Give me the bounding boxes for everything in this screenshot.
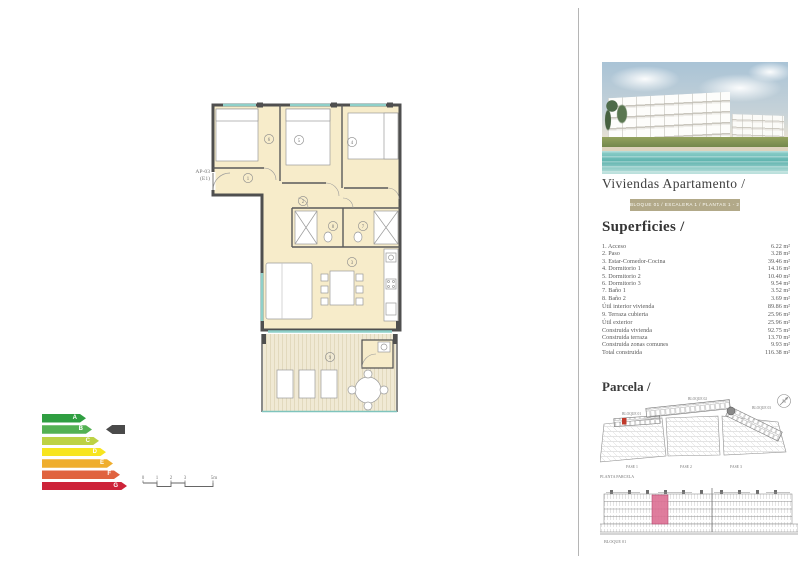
roof-elements [606, 490, 790, 494]
svg-text:5m: 5m [211, 476, 218, 481]
svg-text:0: 0 [142, 476, 145, 481]
panel-divider [578, 8, 579, 556]
row-label: 4. Dormitorio 1 [602, 267, 641, 272]
table-row-total: Total construida116.38 m² [602, 351, 790, 356]
fase1-label: FASE 1 [626, 465, 638, 469]
row-value: 89.86 m² [768, 305, 790, 310]
table-row-subtotal: Útil exterior25.96 m² [602, 321, 790, 326]
energy-bar-a: A [42, 414, 86, 423]
row-value: 13.70 m² [768, 336, 790, 341]
energy-bar-g: G [42, 482, 127, 491]
table-row-subtotal: Construida vivienda92.75 m² [602, 329, 790, 334]
table-row: 6. Dormitorio 39.54 m² [602, 282, 790, 287]
fase2-label: FASE 2 [680, 465, 692, 469]
row-value: 116.38 m² [765, 351, 790, 356]
terrace-storage [362, 340, 393, 368]
row-label: 3. Estar-Comedor-Cocina [602, 260, 665, 265]
cloud [748, 62, 788, 82]
building-elevation: BLOQUE 01 [600, 486, 798, 548]
row-label: Total construida [602, 351, 642, 356]
row-label: 5. Dormitorio 2 [602, 275, 641, 280]
row-label: Útil exterior [602, 321, 632, 326]
row-value: 3.69 m² [771, 297, 790, 302]
svg-text:N: N [782, 400, 786, 405]
row-label: 2. Paso [602, 252, 620, 257]
energy-bar-e: E [42, 459, 113, 468]
scale-tick-labels: 0 1 2 3 5m [142, 476, 217, 481]
row-value: 14.16 m² [768, 267, 790, 272]
energy-letter: B [79, 426, 83, 432]
table-row: 8. Baño 23.69 m² [602, 297, 790, 302]
table-row: Construida zonas comunes9.93 m² [602, 343, 790, 348]
bloque1-label: BLOQUE 01 [622, 412, 641, 416]
row-value: 92.75 m² [768, 329, 790, 334]
plan-sheet-page: AP-03 (E1) 1 2 3 4 5 6 7 8 9 A B C D E F… [0, 0, 799, 565]
row-label: Construida zonas comunes [602, 343, 668, 348]
location-badge: BLOQUE 01 / ESCALERA 1 / PLANTAS 1 - 2 -… [630, 199, 740, 211]
svg-text:3: 3 [184, 476, 187, 481]
row-label: 8. Baño 2 [602, 297, 626, 302]
palm-tree [602, 96, 632, 140]
row-label: 1. Acceso [602, 245, 626, 250]
energy-letter: F [107, 471, 111, 477]
north-arrow-icon: N [778, 395, 791, 408]
superficies-title: Superficies / [602, 219, 685, 236]
energy-letter: C [86, 438, 90, 444]
table-row: 9. Terraza cubierta25.96 m² [602, 313, 790, 318]
site-plan-caption: PLANTA PARCELA [600, 474, 634, 479]
scale-bar: 0 1 2 3 5m [142, 474, 224, 492]
energy-letter: G [113, 483, 118, 489]
unit-label: AP-03 [195, 169, 210, 175]
facade [600, 488, 798, 534]
row-value: 6.22 m² [771, 245, 790, 250]
superficies-table: 1. Acceso6.22 m² 2. Paso3.28 m² 3. Estar… [602, 245, 790, 359]
row-label: 7. Baño 1 [602, 289, 626, 294]
energy-bar-f: F [42, 470, 120, 479]
row-value: 9.93 m² [771, 343, 790, 348]
energy-bar-b: B [42, 425, 92, 434]
table-row: 2. Paso3.28 m² [602, 252, 790, 257]
highlighted-unit [622, 418, 627, 425]
cloud [610, 66, 680, 92]
highlighted-apartment [652, 495, 668, 524]
table-row: 3. Estar-Comedor-Cocina39.46 m² [602, 260, 790, 265]
energy-letter: D [93, 449, 97, 455]
panel-title: Viviendas Apartamento / [602, 176, 745, 192]
table-row: 4. Dormitorio 114.16 m² [602, 267, 790, 272]
table-row: 1. Acceso6.22 m² [602, 245, 790, 250]
rating-pointer-icon [106, 425, 125, 435]
row-value: 25.96 m² [768, 313, 790, 318]
row-label: Construida vivienda [602, 329, 652, 334]
row-value: 9.54 m² [771, 282, 790, 287]
table-row: 5. Dormitorio 210.40 m² [602, 275, 790, 280]
row-value: 25.96 m² [768, 321, 790, 326]
row-value: 3.28 m² [771, 252, 790, 257]
building-photo [602, 62, 788, 174]
elevation-caption: BLOQUE 01 [604, 539, 626, 544]
row-value: 39.46 m² [768, 260, 790, 265]
table-row: Construida terraza13.70 m² [602, 336, 790, 341]
energy-bar-c: C [42, 437, 99, 446]
bloque2-label: BLOQUE 02 [688, 397, 707, 401]
row-label: 9. Terraza cubierta [602, 313, 648, 318]
tower-icon [727, 407, 735, 415]
bloque3-label: BLOQUE 03 [752, 406, 771, 410]
fase3-label: FASE 3 [730, 465, 742, 469]
svg-text:2: 2 [170, 476, 173, 481]
energy-letter: E [100, 460, 104, 466]
floor-plan: AP-03 (E1) 1 2 3 4 5 6 7 8 9 [178, 93, 423, 423]
row-label: Construida terraza [602, 336, 648, 341]
unit-sublabel: (E1) [200, 175, 210, 182]
table-row-subtotal: Útil interior vivienda89.86 m² [602, 305, 790, 310]
energy-bar-d: D [42, 448, 106, 457]
energy-letter: A [73, 415, 77, 421]
row-value: 10.40 m² [768, 275, 790, 280]
row-value: 3.52 m² [771, 289, 790, 294]
row-label: 6. Dormitorio 3 [602, 282, 641, 287]
table-row: 7. Baño 13.52 m² [602, 289, 790, 294]
row-label: Útil interior vivienda [602, 305, 654, 310]
swimming-pool [602, 151, 788, 174]
svg-text:1: 1 [156, 476, 159, 481]
site-plan: N BLOQUE 01 BLOQUE 02 BLOQUE 03 FASE 1 F… [600, 392, 796, 482]
